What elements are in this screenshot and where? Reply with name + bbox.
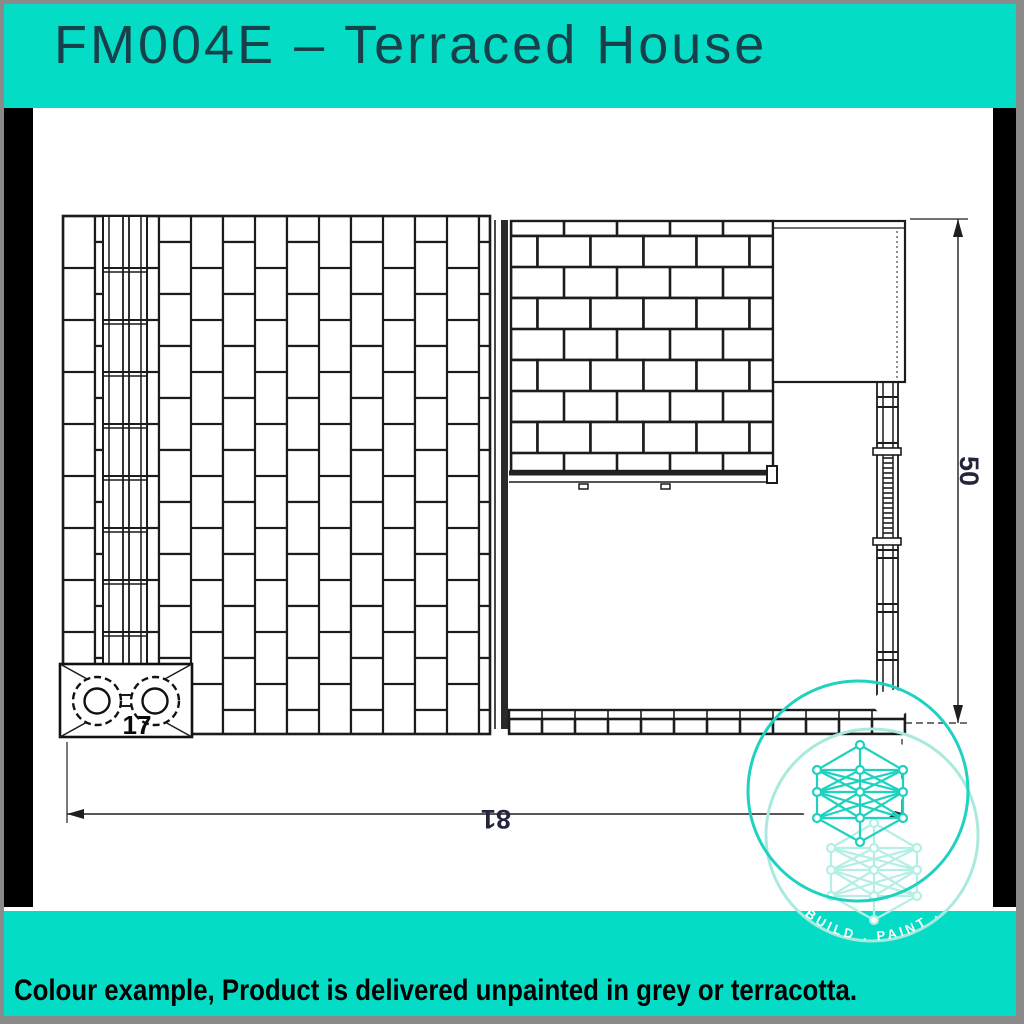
colour-disclaimer-text: Colour example, Product is delivered unp…: [14, 974, 857, 1008]
image-canvas: [4, 108, 1016, 911]
page-title: FM004E – Terraced House: [4, 4, 1016, 76]
pillarbox-bar-left: [4, 108, 33, 907]
pillarbox-bar-right: [993, 108, 1016, 907]
product-image-page: { "header": { "title": "FM004E – Terrace…: [0, 0, 1024, 1024]
footer-band: Colour example, Product is delivered unp…: [4, 911, 1016, 1016]
header-band: FM004E – Terraced House: [4, 4, 1016, 108]
